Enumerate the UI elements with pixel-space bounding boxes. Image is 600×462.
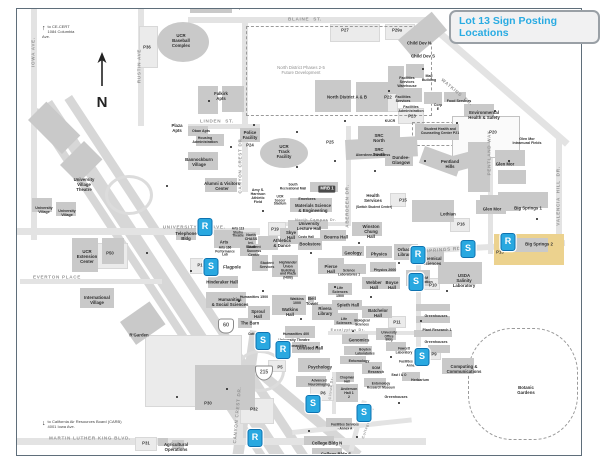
- parking-lot-label: P9: [431, 353, 436, 358]
- parking-lot-label: P11: [393, 321, 400, 326]
- map-label: Lothian: [440, 213, 456, 218]
- poi-dot: [334, 160, 336, 162]
- street-label: EVERTON PLACE: [33, 275, 81, 280]
- street-label: MARTIN LUTHER KING BLVD.: [49, 436, 131, 441]
- map-label: Advanced Neuroimaging: [308, 379, 329, 386]
- map-label: Big Springs 2: [525, 243, 553, 248]
- parking-lot-label: P19: [271, 228, 279, 233]
- sign-posting-marker-R: R: [411, 246, 426, 264]
- poi-dot: [424, 160, 426, 162]
- street-label: IOWA AVE.: [31, 37, 36, 67]
- parking-lot-label: P22: [384, 96, 392, 101]
- map-label: Arts 113 Studio Theatre: [232, 228, 244, 239]
- map-label: Bannockburn Village: [185, 158, 213, 168]
- map-label: Student Success Center: [247, 245, 262, 257]
- map-label: Pierce Hall: [325, 265, 338, 275]
- map-label: (Switch Student Center): [356, 206, 392, 210]
- parking-lot-label: P30: [204, 402, 212, 407]
- map-label: Aberdeen-Inverness: [356, 153, 391, 157]
- map-label: East I & O: [391, 374, 406, 378]
- map-label: South Recreational Mall: [280, 183, 306, 190]
- map-label: UCR Track Facility: [277, 145, 292, 159]
- poi-dot: [420, 320, 422, 322]
- map-label: Child Dev N: [407, 42, 431, 47]
- parking-lot-label: P31: [142, 442, 150, 447]
- map-label: Falkirk Apts: [214, 92, 228, 102]
- map-label: Bookstore: [299, 243, 320, 248]
- parking-lot-label: P27: [341, 29, 349, 34]
- map-label: Fawcett Laboratory: [396, 347, 413, 354]
- sign-posting-marker-S: S: [461, 240, 476, 258]
- sign-posting-marker-R: R: [248, 429, 263, 447]
- road: [20, 279, 162, 284]
- map-label: Humanities 1500: [240, 295, 268, 299]
- map-label: Health Services: [364, 194, 382, 204]
- map-label: Corp E: [434, 103, 442, 111]
- map-label: North District Phases 2-5 Future Develop…: [277, 66, 325, 76]
- map-label: Webber Hall: [366, 281, 382, 291]
- map-label: Physics: [371, 253, 387, 258]
- map-label: Telephone Bldg: [175, 232, 196, 242]
- parking-lot-label: P6: [320, 392, 325, 397]
- map-label: Facilities Administration: [398, 105, 423, 113]
- street-label: LINDEN ST.: [200, 119, 234, 124]
- offmap-note: ↓to California Air Resources Board (CARB…: [42, 419, 122, 429]
- map-label: Humanities & Social Sciences: [212, 298, 249, 308]
- map-label: The Barn: [241, 322, 260, 327]
- map-label: Science Laboratories 1: [338, 269, 360, 276]
- map-label: Plant Research 1: [423, 328, 452, 332]
- sign-posting-marker-R: R: [198, 218, 213, 236]
- map-label: Psychology: [308, 366, 332, 371]
- street-label: ABERDEEN DR.: [345, 184, 350, 227]
- map-label: North District A & B: [327, 96, 367, 101]
- map-label: Chapman Hall: [340, 376, 355, 383]
- map-label: Athletics & Dance: [273, 239, 291, 249]
- street-label: Eucalyptus Dr.: [331, 328, 366, 332]
- map-label: Stonehaven Apts: [211, 6, 246, 11]
- map-label: Sproul Hall: [251, 310, 265, 320]
- map-label: University Village: [58, 209, 75, 217]
- map-label: University Office Bldg: [381, 332, 396, 343]
- compass-n-label: N: [92, 94, 112, 111]
- map-label: Student Services: [260, 261, 275, 269]
- poi-dot: [208, 100, 210, 102]
- poi-dot: [398, 402, 400, 404]
- map-label: UCR Baseball Complex: [172, 34, 190, 48]
- building: [498, 170, 526, 184]
- map-label: Food Services: [447, 99, 472, 103]
- map-label: Genomics: [349, 339, 370, 344]
- poi-dot: [388, 90, 390, 92]
- parking-lot-label: P1: [197, 264, 202, 269]
- poi-dot: [230, 146, 232, 148]
- map-label: University Village: [35, 206, 52, 214]
- map-label: Geology: [344, 252, 361, 257]
- street-label: RUSTIN AVE: [137, 49, 142, 83]
- map-label: University Lecture Hall: [297, 222, 322, 232]
- map-label: Spieth Hall: [337, 304, 359, 309]
- poi-dot: [422, 68, 424, 70]
- parking-lot-label: P5: [277, 366, 282, 371]
- poi-dot: [374, 170, 376, 172]
- map-label: MRB 1: [318, 186, 335, 193]
- map-label: Arts 166 Performance Lab: [215, 247, 235, 258]
- map-label: Herbarium: [411, 378, 429, 382]
- north-arrow-icon: [92, 52, 112, 88]
- map-label: Facilities Services: [395, 95, 410, 103]
- map-label: Botanic Gardens: [517, 386, 534, 396]
- poi-dot: [370, 296, 372, 298]
- map-label: Humanities 400: [283, 332, 309, 336]
- route-shield-60: 60: [218, 319, 234, 334]
- map-label: Facilities Services - Annex A: [331, 423, 359, 430]
- poi-dot: [300, 318, 302, 320]
- poi-dot: [310, 252, 312, 254]
- map-label: International Village: [84, 296, 110, 306]
- map-label: Life Sciences: [336, 317, 352, 325]
- parking-lot-label: P23: [408, 115, 416, 120]
- map-label: Mail Building: [422, 74, 436, 82]
- parking-lot-label: P16: [457, 223, 465, 228]
- poi-dot: [398, 262, 400, 264]
- poi-dot: [296, 166, 298, 168]
- street-label: BLAINE ST.: [288, 17, 322, 22]
- poi-dot: [456, 122, 458, 124]
- map-label: Entomology Research Museum: [367, 382, 395, 389]
- map-canvas: BLAINE ST.LINDEN ST.UNIVERSITYAVE.EVERTO…: [0, 0, 600, 462]
- map-label: Batchelor Hall: [368, 309, 388, 319]
- street-label: VALENCIA HILL DR.: [556, 166, 561, 225]
- north-compass: N: [92, 52, 112, 104]
- map-title: Lot 13 Sign Posting Locations: [449, 10, 600, 44]
- map-label: Pentland Hills: [441, 160, 459, 170]
- street-label: PENTLAND WAY: [487, 131, 492, 176]
- map-label: Life Sciences 1500: [332, 286, 348, 298]
- map-label: Highlander Union Building and Plaza (HUB…: [279, 261, 297, 280]
- parking-lot-label: P20: [489, 131, 497, 136]
- poi-dot: [176, 396, 178, 398]
- sign-posting-marker-S: S: [256, 332, 271, 350]
- campus-map: BLAINE ST.LINDEN ST.UNIVERSITYAVE.EVERTO…: [0, 0, 600, 462]
- map-label: Computing & Communications: [447, 365, 482, 375]
- map-label: Housing Administration: [192, 136, 217, 144]
- map-label: Emerbees: [298, 197, 315, 201]
- map-label: KUCR: [385, 119, 395, 123]
- map-label: Environmental Health & Safety: [468, 111, 500, 121]
- sign-posting-marker-S: S: [204, 258, 219, 276]
- poi-dot: [226, 388, 228, 390]
- direction-arrow-icon: ↓: [42, 419, 46, 428]
- map-label: Child Dev S: [411, 55, 435, 60]
- map-label: Costo Hall: [298, 236, 314, 240]
- poi-dot: [146, 252, 148, 254]
- map-label: Hinderaker Hall: [206, 281, 238, 286]
- map-label: Anderson Hall 1 2: [341, 387, 358, 399]
- map-label: SOM Research: [368, 366, 384, 374]
- map-label: Glen Mor: [496, 163, 515, 168]
- parking-lot-label: P25: [326, 141, 334, 146]
- sign-posting-marker-S: S: [409, 273, 424, 291]
- map-label: Rivera Library: [318, 307, 333, 317]
- poi-dot: [344, 120, 346, 122]
- poi-dot: [356, 436, 358, 438]
- map-label: Plaza Apts: [172, 124, 183, 134]
- map-label: Bourns Hall: [324, 236, 348, 241]
- map-label: Oban Apts: [192, 129, 210, 133]
- poi-dot: [262, 290, 264, 292]
- parking-lot-label: P15: [399, 199, 407, 204]
- sign-posting-marker-R: R: [276, 341, 291, 359]
- sign-posting-marker-S: S: [306, 395, 321, 413]
- parking-lot-label: P13: [496, 251, 504, 256]
- map-label: Watkins Hall: [282, 308, 298, 318]
- poi-dot: [190, 270, 192, 272]
- map-label: Greenhouses: [385, 395, 408, 399]
- map-label: Big Springs 1: [514, 207, 542, 212]
- map-label: Bell Tower: [306, 297, 318, 307]
- poi-dot: [446, 290, 448, 292]
- map-label: Greenhouses: [425, 314, 448, 318]
- map-label: Alumni & Visitors Center: [204, 182, 240, 192]
- dashed-zone: [468, 328, 578, 440]
- map-label: Police Facility: [243, 131, 258, 141]
- map-label: Glen Mor: [483, 208, 502, 213]
- map-label: Watkins 1000: [290, 297, 304, 305]
- poi-dot: [390, 356, 392, 358]
- map-label: Boyce Hall: [386, 281, 399, 291]
- building: [416, 304, 450, 311]
- map-label: Winston Chung Hall: [363, 225, 380, 239]
- street-label: UNIVERSITY: [163, 225, 198, 230]
- parking-lot-label: P36: [143, 46, 151, 51]
- map-label: UCR Extension Center: [77, 250, 98, 264]
- map-label: Dundee- Glasgow: [392, 156, 410, 166]
- parking-lot-label: P10: [429, 284, 437, 289]
- map-label: Olmsted Hall: [297, 347, 323, 352]
- poi-dot: [166, 185, 168, 187]
- freeway-ramp-loop: [105, 175, 153, 215]
- poi-dot: [358, 242, 360, 244]
- offmap-note: ↑to CE-CERT 1084 Columbia Ave.: [42, 24, 78, 40]
- map-label: Flagpole: [223, 266, 241, 271]
- map-label: College Bldg S: [321, 453, 351, 458]
- sign-posting-marker-S: S: [357, 404, 372, 422]
- sign-posting-marker-S: S: [415, 348, 430, 366]
- map-label: Greenhouses: [425, 340, 448, 344]
- map-label: Entomology: [349, 359, 370, 363]
- direction-arrow-icon: ↑: [42, 24, 46, 33]
- map-label: Student Health and Counseling Center P21: [421, 128, 459, 136]
- poi-dot: [296, 131, 298, 133]
- map-label: Materials Science & Engineering: [295, 204, 331, 214]
- parking-lot-label: P24: [246, 144, 254, 149]
- parking-lot-label: P29a: [392, 29, 402, 34]
- map-label: USDA Salinity Laboratory: [453, 274, 475, 288]
- sign-posting-marker-R: R: [501, 233, 516, 251]
- map-label: UCR Soccer Stadium: [274, 196, 287, 207]
- poi-dot: [308, 430, 310, 432]
- map-label: Biological Sciences: [354, 319, 369, 326]
- map-label: Agricultural Operations: [164, 443, 188, 453]
- map-label: Physics 2000: [374, 268, 397, 272]
- map-label: SRC North: [373, 134, 384, 144]
- map-label: Boyden Laboratories: [355, 348, 374, 355]
- map-label: Amy S. Harrison Athletic Field: [251, 188, 266, 204]
- map-label: University Village Theatre: [74, 178, 95, 192]
- map-label: Facilities Services Warehouse: [397, 76, 416, 88]
- poi-dot: [262, 210, 264, 212]
- parking-lot-label: P50: [106, 252, 114, 257]
- poi-dot: [253, 124, 255, 126]
- parking-lot-label: P32: [250, 408, 258, 413]
- map-label: R'Garden: [129, 334, 148, 339]
- poi-dot: [536, 218, 538, 220]
- street-label: AVE.: [212, 225, 225, 230]
- map-label: College Bldg N: [312, 442, 343, 447]
- map-label: Glen Mor Intramural Fields: [513, 137, 542, 145]
